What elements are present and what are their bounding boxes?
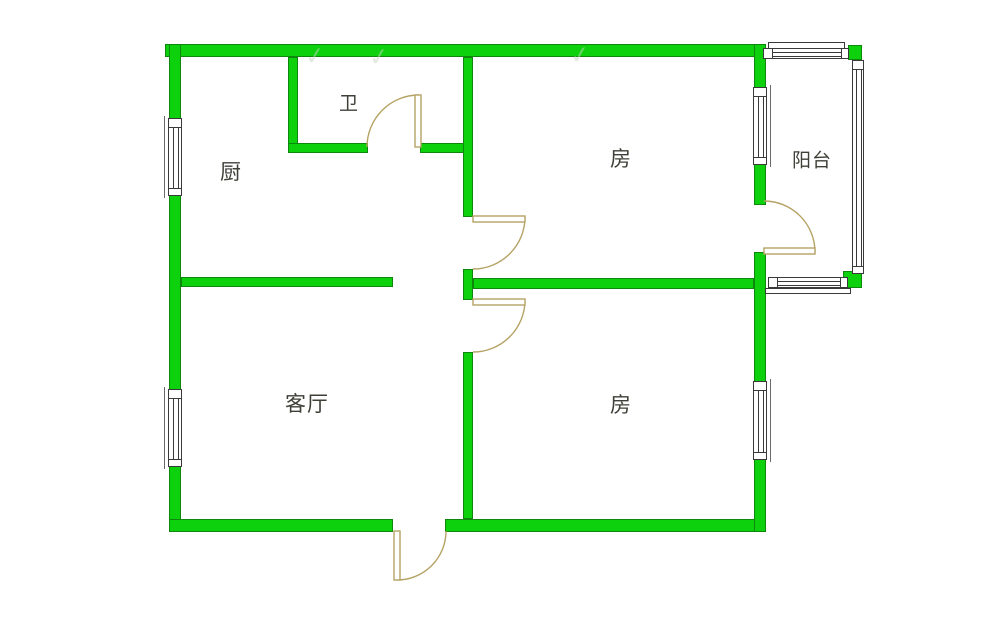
door-bedroom-top-panel — [473, 216, 525, 222]
door-bedroom-bottom-swing-arc — [473, 300, 525, 352]
door-bedroom-top-swing-arc — [473, 217, 525, 269]
floor-plan-canvas: 厨卫房阳台客厅房✓✓✓ — [0, 0, 1000, 634]
door-bedroom-bottom-panel — [473, 299, 525, 305]
door-bathroom-panel — [415, 95, 421, 147]
door-entrance-panel — [394, 531, 400, 580]
door-bathroom-swing-arc — [367, 95, 419, 147]
door-balcony-panel — [764, 248, 815, 254]
door-entrance-swing-arc — [397, 531, 446, 580]
door-layer — [0, 0, 1000, 634]
door-balcony-swing-arc — [764, 201, 815, 252]
